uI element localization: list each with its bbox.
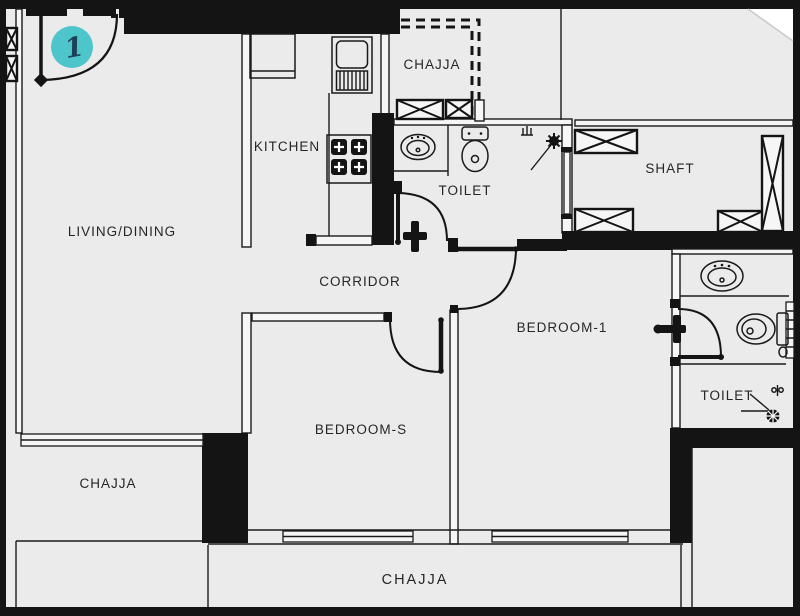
chajja-window-box [446,100,472,118]
label-shaft: SHAFT [645,161,694,176]
wall-bottom-right-horiz [692,428,794,448]
label-toilet-common: TOILET [438,183,491,198]
column-marker [762,136,783,231]
wall-bedroom-s-top [252,313,384,321]
floor-plan: 1 LIVING/DINING KITCHEN CHAJJA TOILET SH… [0,0,800,616]
jamb-corridor-left [306,234,316,246]
window [492,531,628,542]
column-marker [718,211,763,232]
label-bedroom-1: BEDROOM-1 [517,320,608,335]
wall-chajja-left-block [202,433,248,543]
entry-jamb-left [111,8,116,18]
wall-top-left-b [83,9,113,16]
wall-sink-side [381,34,389,115]
wall-toilet-attached-top [672,249,793,254]
wall-post [475,100,484,121]
label-chajja-left: CHAJJA [79,476,136,491]
column-marker [575,130,637,153]
label-chajja-bottom: CHAJJA [382,572,449,588]
wall-top-left-a [26,9,67,16]
wall-bedroom1-top [517,239,567,251]
label-chajja-top: CHAJJA [403,57,460,72]
wall-shaft-bottom [562,231,794,250]
window [21,434,203,446]
wall-top-main [124,9,400,34]
chajja-window-box [397,100,443,119]
column-marker [575,209,633,232]
wall-bottom-right-vert [670,428,692,543]
label-corridor: CORRIDOR [319,274,401,289]
label-living-dining: LIVING/DINING [68,224,176,239]
column-marker [6,56,17,81]
label-kitchen: KITCHEN [254,139,320,154]
wall-shaft-top [575,120,793,126]
wall-corridor-top [316,236,372,245]
label-bedroom-s: BEDROOM-S [315,422,407,437]
wall-kitchen-toilet [372,113,394,245]
window [283,531,413,542]
entry-jamb-right [119,8,124,18]
unit-badge: 1 [51,26,93,68]
wall-bedroom-divider [450,310,458,544]
wall-bedroom-s-left [242,313,251,433]
label-toilet-attached: TOILET [700,388,753,403]
column-marker [6,28,17,50]
